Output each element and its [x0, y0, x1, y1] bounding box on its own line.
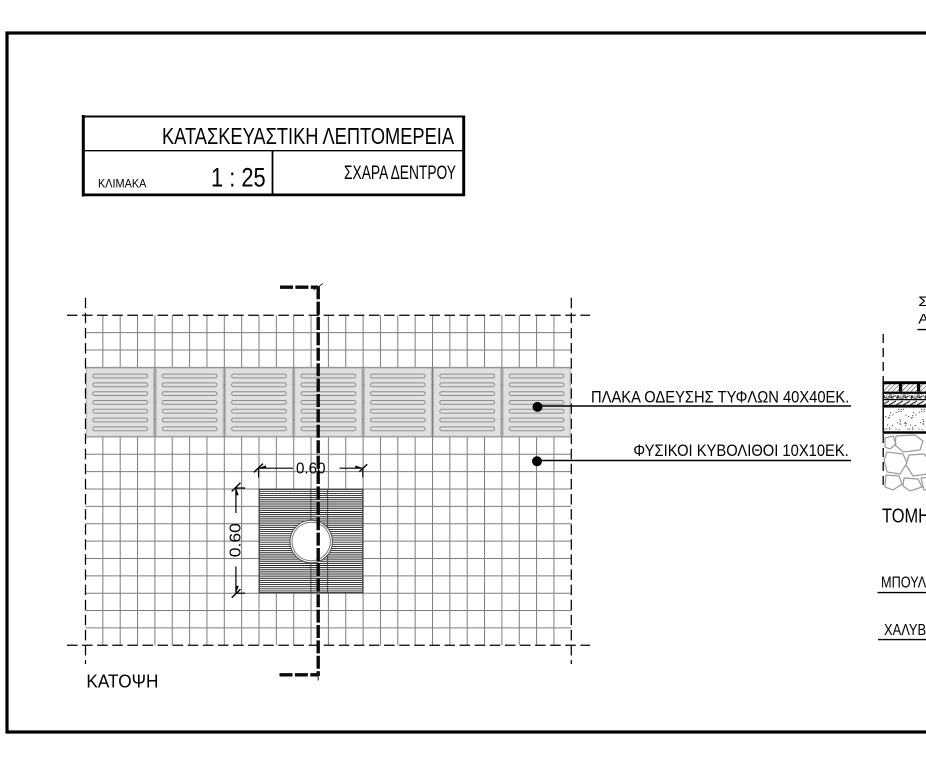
svg-text:ΜΠΟΥΛΟΝΙΑ: ΜΠΟΥΛΟΝΙΑ	[881, 575, 926, 592]
svg-text:ΚΛΙΜΑΚΑ: ΚΛΙΜΑΚΑ	[98, 177, 146, 191]
svg-text:ΣΧ: ΣΧ	[918, 293, 926, 309]
svg-text:1 : 25: 1 : 25	[211, 162, 266, 192]
svg-text:ΤΟΜΗ: ΤΟΜΗ	[882, 506, 926, 528]
svg-text:ΦΥΣΙΚΟΙ ΚΥΒΟΛΙΘΟΙ 10Χ10ΕΚ.: ΦΥΣΙΚΟΙ ΚΥΒΟΛΙΘΟΙ 10Χ10ΕΚ.	[633, 441, 848, 460]
svg-text:ΚΑΤΟΨΗ: ΚΑΤΟΨΗ	[86, 671, 158, 692]
svg-text:0.60: 0.60	[227, 523, 244, 557]
svg-text:ΚΑΤΑΣΚΕΥΑΣΤΙΚΗ ΛΕΠΤΟΜΕΡΕΙΑ: ΚΑΤΑΣΚΕΥΑΣΤΙΚΗ ΛΕΠΤΟΜΕΡΕΙΑ	[162, 123, 455, 149]
svg-text:ΧΑΛΥΒΔΙΝΗ: ΧΑΛΥΒΔΙΝΗ	[884, 622, 926, 639]
svg-text:ΠΛΑΚΑ ΟΔΕΥΣΗΣ ΤΥΦΛΩΝ 40Χ40ΕΚ.: ΠΛΑΚΑ ΟΔΕΥΣΗΣ ΤΥΦΛΩΝ 40Χ40ΕΚ.	[591, 387, 849, 406]
svg-text:ΣΧΑΡΑ ΔΕΝΤΡΟΥ: ΣΧΑΡΑ ΔΕΝΤΡΟΥ	[344, 163, 456, 184]
svg-text:0.60: 0.60	[296, 461, 326, 478]
svg-text:ΑΠ: ΑΠ	[918, 311, 926, 327]
